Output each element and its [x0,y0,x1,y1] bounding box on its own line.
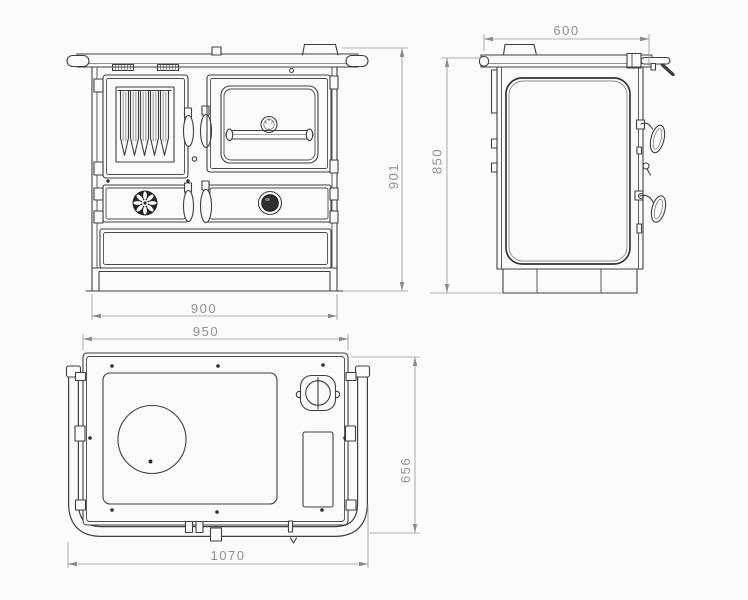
firebox-hinge-top [94,79,103,92]
side-cooktop [480,45,674,75]
dim-side-height: 850 [430,58,482,293]
air-rosette [133,191,158,216]
side-left-duct [492,70,498,113]
plate-screw [290,69,294,73]
oven-handle-bar [226,129,313,141]
flue-collar-front [303,45,339,56]
center-screw [192,157,196,161]
side-door-handles [635,120,668,233]
handle-upper [648,124,667,154]
side-panel [506,78,630,264]
side-body [492,67,644,269]
stove-technical-drawing: 901 850 600 900 950 [0,0,748,600]
dim-label-top-plate-width: 950 [193,324,219,339]
rail-mark [291,538,297,543]
dim-label-front-height: 901 [386,163,401,189]
top-plate [83,353,348,525]
oven-hinge-top [330,76,338,89]
drawing-canvas: 901 850 600 900 950 [0,0,748,600]
storage-drawer [100,229,331,268]
dim-label-front-width: 900 [191,301,217,316]
front-plinth [86,272,343,292]
dim-label-overall-width: 1070 [211,548,246,563]
flue-outlet [296,376,339,411]
ash-drawer-left [94,179,190,223]
dim-label-side-depth: 600 [553,23,579,38]
rail-block [211,528,222,541]
rail-clamp [186,522,193,533]
plate-knob [212,47,221,55]
drawer-knob [259,192,282,215]
rail-clamp [289,521,293,532]
rail-cap-right [356,366,370,377]
door-handles-lower [184,181,212,223]
front-cooktop [67,45,368,73]
dim-top-plate-width: 950 [83,324,348,350]
rail-bracket-side [627,54,641,69]
dim-front-width: 900 [92,294,337,320]
handle-lower [649,194,668,223]
side-view [430,45,673,294]
dim-front-height: 901 [342,48,408,291]
oven-hinge-bottom [330,160,338,173]
firebox-door [94,75,188,178]
dim-side-depth: 600 [484,23,649,68]
side-bolt [492,163,498,172]
drawer-hinge [94,211,103,223]
front-view [67,45,368,292]
drawer-hinge [94,188,103,200]
dim-label-side-height: 850 [430,148,445,174]
dim-label-top-depth: 656 [398,457,413,483]
ash-drawer-right [207,185,338,223]
side-bolt [492,139,498,148]
drawer-hinge [330,211,338,223]
side-plinth [430,269,637,293]
flue-collar-side [504,45,537,56]
firebox-hinge-bottom [94,162,103,175]
latch-key [643,163,649,169]
oven-door [207,75,338,173]
firebox-grate-slats [118,91,171,156]
top-view [67,353,370,543]
drawer-hinge [330,188,338,200]
rail-clamp [196,522,203,533]
rail-cap-right [346,56,368,67]
side-rail-end [641,58,673,75]
rail-cap-left [67,56,89,67]
